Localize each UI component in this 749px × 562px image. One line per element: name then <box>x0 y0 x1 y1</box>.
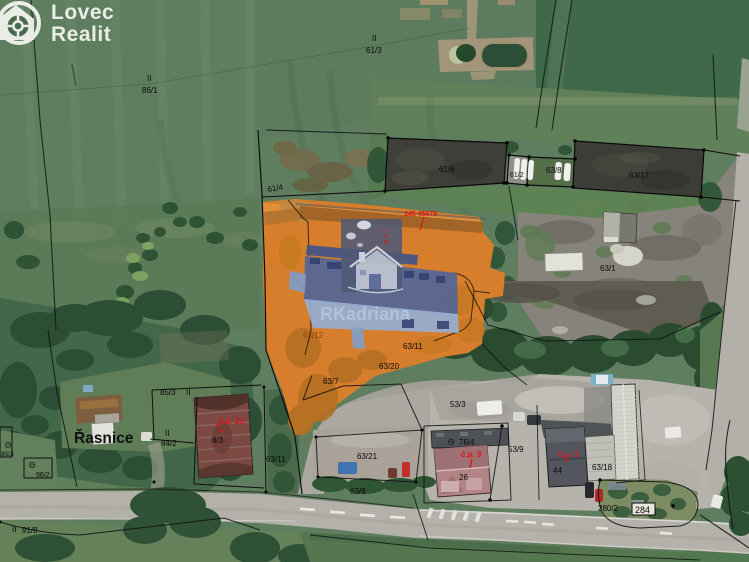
svg-text:63/1: 63/1 <box>600 264 616 273</box>
svg-text:RKadriana: RKadriana <box>320 304 411 324</box>
svg-text:Lovec: Lovec <box>51 1 114 24</box>
svg-text:8/3: 8/3 <box>212 436 224 445</box>
svg-text:Θ: Θ <box>5 441 11 450</box>
svg-text:63/21: 63/21 <box>357 452 378 461</box>
svg-text:63/7: 63/7 <box>323 377 339 386</box>
svg-text:č.p. 21: č.p. 21 <box>219 417 244 426</box>
svg-text:53/3: 53/3 <box>450 400 466 409</box>
svg-text:Θ: Θ <box>448 438 454 447</box>
svg-text:84/2: 84/2 <box>161 439 177 448</box>
svg-text:345 45678: 345 45678 <box>404 211 437 218</box>
svg-text:61/3: 61/3 <box>366 46 382 55</box>
svg-text:II: II <box>165 429 169 438</box>
svg-text:91/8: 91/8 <box>22 526 38 535</box>
svg-text:85/3: 85/3 <box>160 388 176 397</box>
svg-text:85/3: 85/3 <box>1 451 14 458</box>
svg-text:76/4: 76/4 <box>459 438 475 447</box>
svg-text:63/11: 63/11 <box>403 342 423 351</box>
svg-text:284: 284 <box>635 505 650 515</box>
svg-text:Řasnice: Řasnice <box>74 429 134 447</box>
svg-text:63/8: 63/8 <box>350 487 366 496</box>
svg-text:63/12: 63/12 <box>303 331 324 340</box>
svg-text:č.p. 9: č.p. 9 <box>461 450 482 459</box>
svg-text:53/9: 53/9 <box>508 445 524 454</box>
svg-text:II: II <box>372 34 376 43</box>
svg-text:II: II <box>186 388 190 397</box>
svg-text:61/6: 61/6 <box>439 165 455 174</box>
svg-text:26: 26 <box>459 473 468 482</box>
svg-text:č.p. 3: č.p. 3 <box>558 450 579 459</box>
svg-text:63/18: 63/18 <box>592 463 613 472</box>
svg-text:86/1: 86/1 <box>142 86 158 95</box>
svg-text:44: 44 <box>553 466 562 475</box>
svg-text:63/11: 63/11 <box>266 455 286 464</box>
svg-text:61/2: 61/2 <box>510 172 524 179</box>
svg-text:Realit: Realit <box>51 23 111 46</box>
svg-text:II: II <box>147 74 151 83</box>
svg-text:63/20: 63/20 <box>379 362 400 371</box>
svg-text:280/2: 280/2 <box>598 504 619 513</box>
svg-text:Θ: Θ <box>29 461 35 470</box>
svg-text:63/17: 63/17 <box>629 171 650 180</box>
svg-text:96/2: 96/2 <box>36 472 50 479</box>
svg-text:63/8: 63/8 <box>546 166 562 175</box>
svg-text:II: II <box>12 525 16 534</box>
